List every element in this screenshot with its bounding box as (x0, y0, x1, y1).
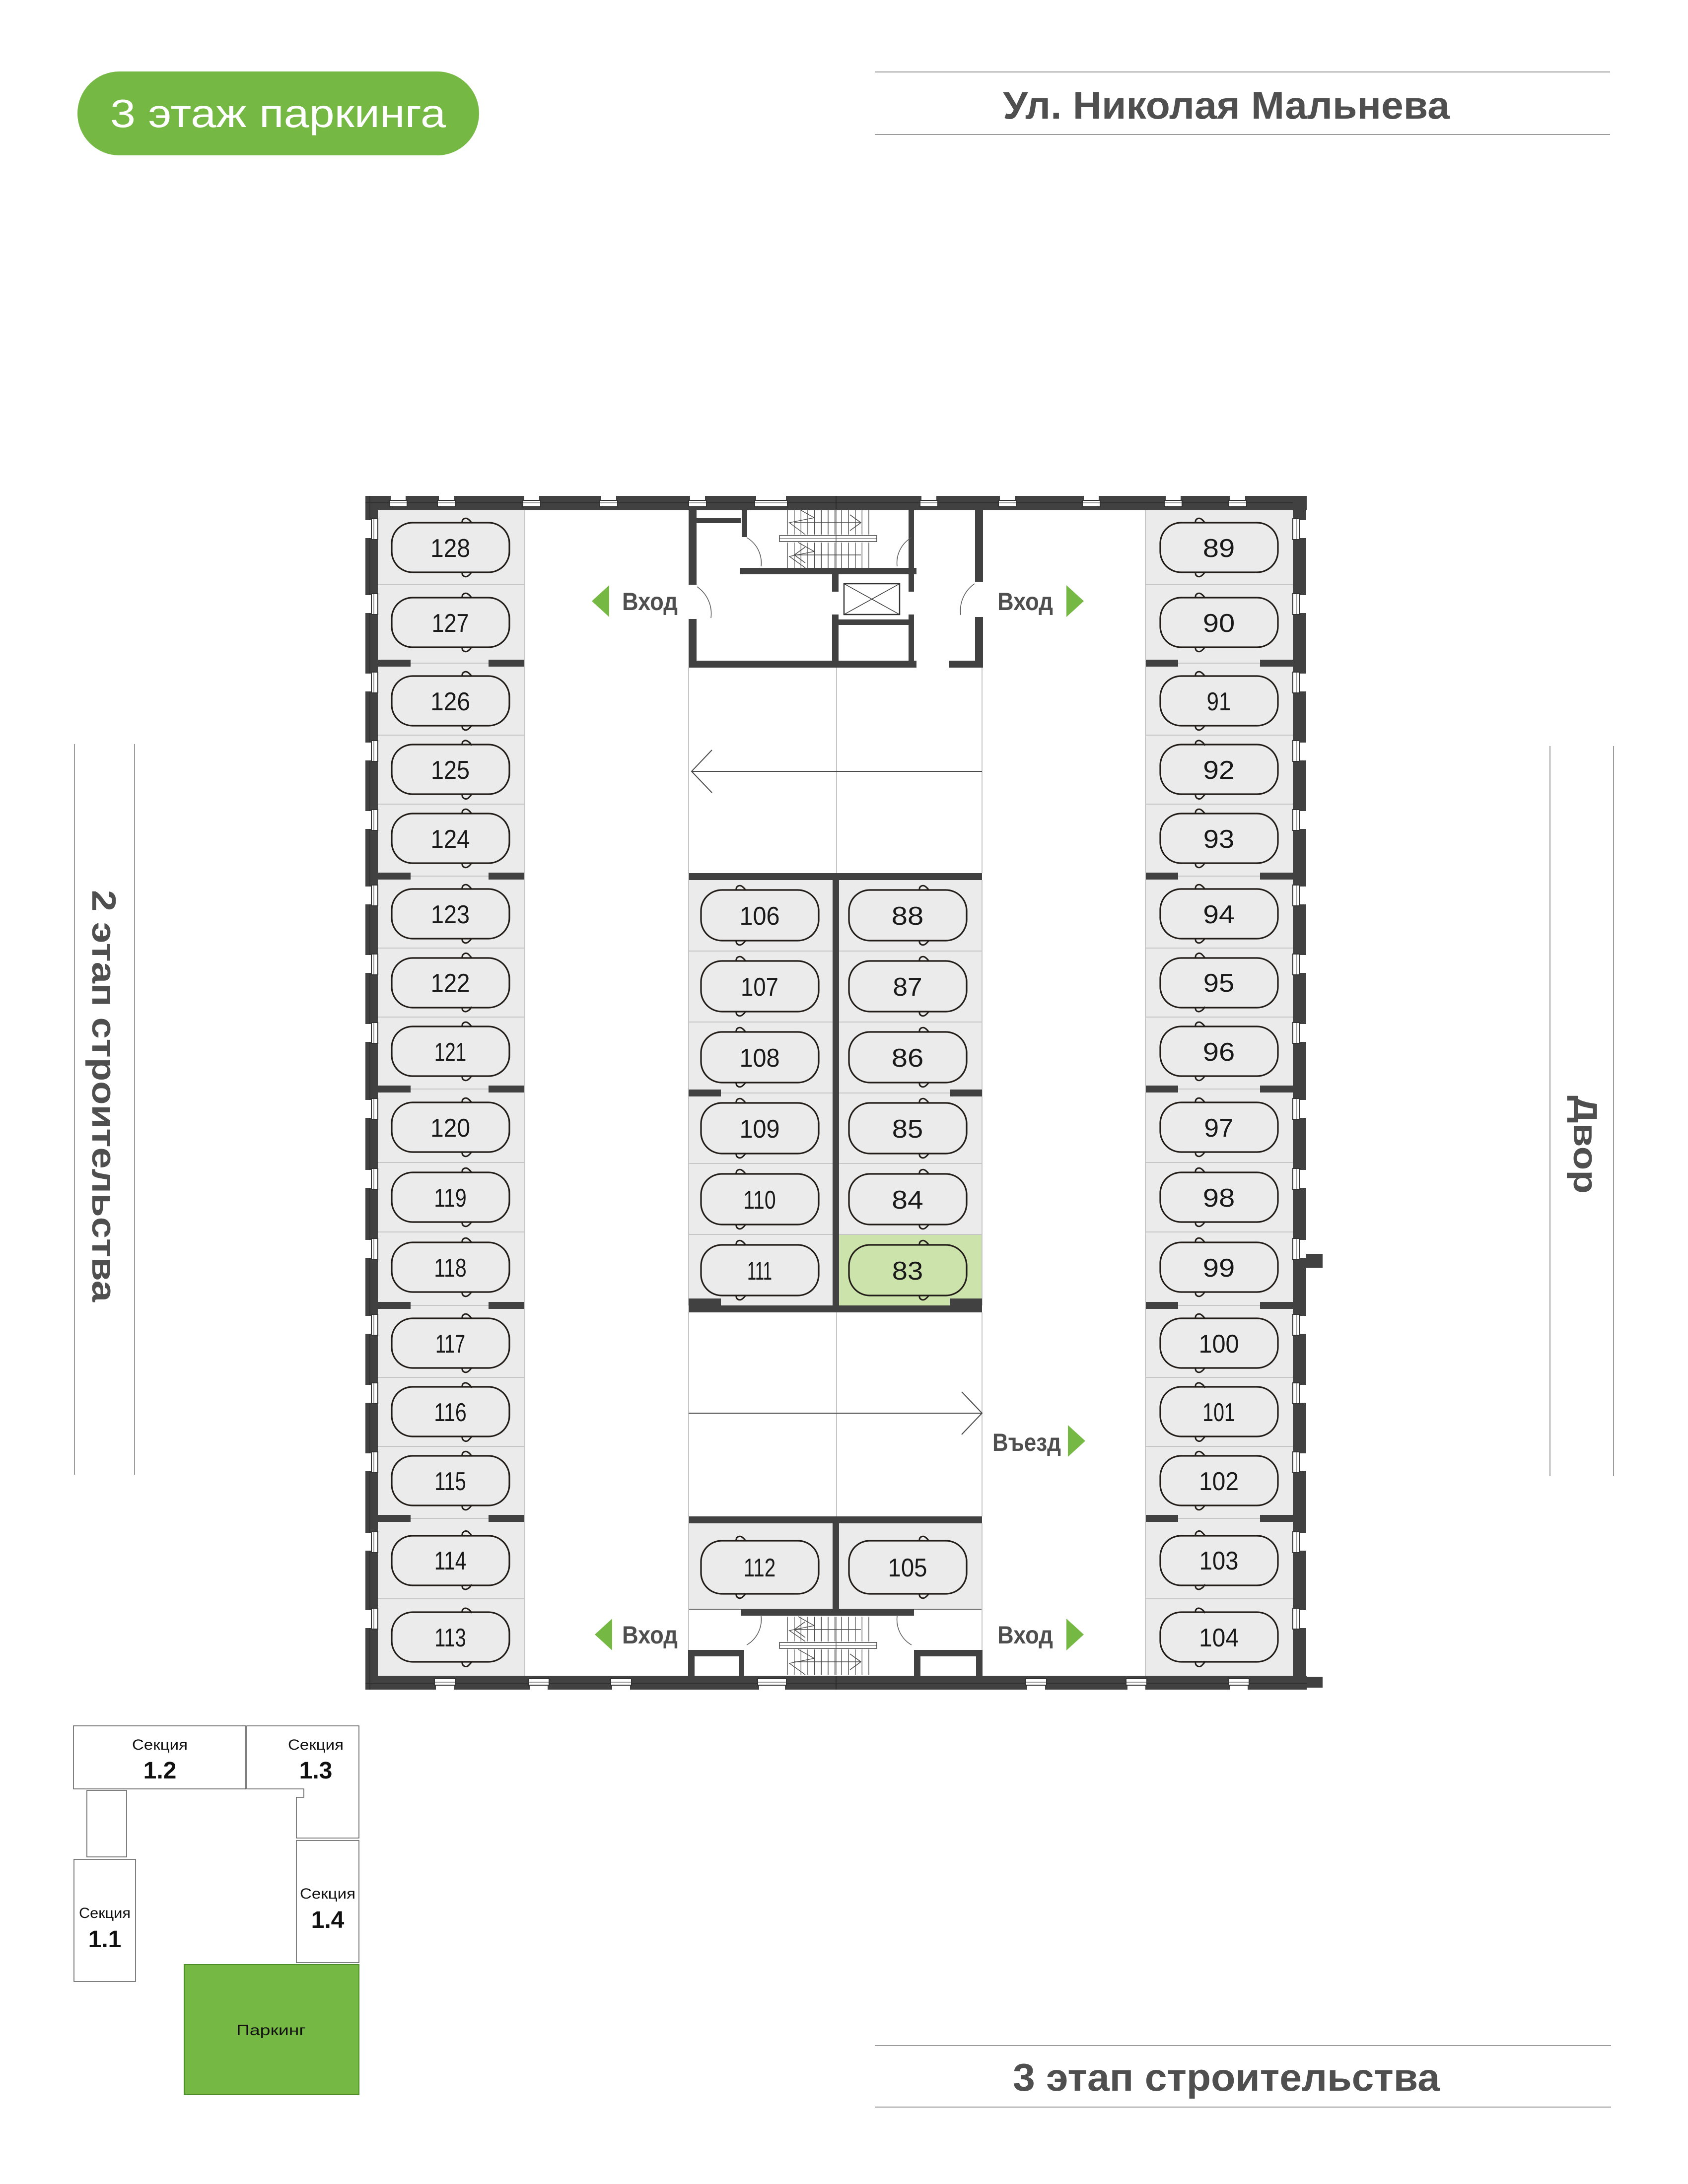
svg-text:95: 95 (1203, 969, 1234, 998)
svg-text:Паркинг: Паркинг (236, 2022, 306, 2039)
svg-text:Въезд: Въезд (992, 1429, 1061, 1456)
svg-text:91: 91 (1207, 687, 1231, 716)
svg-text:3 этаж паркинга: 3 этаж паркинга (110, 91, 446, 136)
svg-text:98: 98 (1203, 1184, 1235, 1213)
svg-text:Вход: Вход (997, 1621, 1053, 1649)
svg-text:127: 127 (432, 609, 469, 638)
svg-text:Вход: Вход (622, 1621, 678, 1649)
svg-text:Секция: Секция (300, 1886, 355, 1902)
svg-text:86: 86 (892, 1044, 924, 1073)
svg-text:88: 88 (892, 902, 924, 931)
svg-text:122: 122 (431, 969, 470, 998)
svg-text:85: 85 (892, 1115, 923, 1144)
svg-text:126: 126 (430, 687, 470, 716)
svg-text:90: 90 (1203, 609, 1235, 638)
svg-text:1.1: 1.1 (88, 1926, 122, 1953)
svg-text:113: 113 (434, 1624, 466, 1652)
svg-text:97: 97 (1204, 1114, 1233, 1143)
svg-text:Двор: Двор (1566, 1095, 1604, 1194)
svg-text:99: 99 (1203, 1254, 1235, 1283)
svg-text:93: 93 (1203, 825, 1234, 854)
svg-text:Секция: Секция (132, 1737, 188, 1753)
svg-text:123: 123 (431, 900, 470, 929)
svg-text:Секция: Секция (288, 1737, 344, 1753)
svg-text:1.4: 1.4 (311, 1907, 345, 1933)
svg-text:100: 100 (1198, 1330, 1239, 1359)
svg-text:103: 103 (1199, 1547, 1239, 1575)
svg-text:119: 119 (434, 1184, 467, 1213)
svg-text:1.3: 1.3 (299, 1758, 333, 1784)
svg-text:101: 101 (1202, 1398, 1235, 1427)
svg-text:Вход: Вход (997, 588, 1053, 615)
svg-text:2 этап строительства: 2 этап строительства (85, 890, 123, 1302)
svg-text:115: 115 (434, 1467, 466, 1496)
svg-text:111: 111 (747, 1257, 772, 1286)
svg-text:128: 128 (430, 534, 470, 563)
svg-text:107: 107 (741, 973, 778, 1002)
svg-text:109: 109 (739, 1115, 779, 1144)
svg-text:124: 124 (431, 825, 470, 854)
svg-text:121: 121 (434, 1038, 467, 1067)
svg-text:1.2: 1.2 (143, 1758, 177, 1784)
svg-text:114: 114 (434, 1547, 467, 1575)
svg-text:92: 92 (1203, 756, 1234, 785)
svg-text:112: 112 (744, 1554, 776, 1582)
svg-text:Секция: Секция (79, 1905, 131, 1921)
svg-text:Вход: Вход (622, 588, 678, 615)
svg-text:Ул. Николая Мальнева: Ул. Николая Мальнева (1003, 83, 1450, 127)
svg-text:110: 110 (743, 1186, 776, 1215)
svg-text:104: 104 (1199, 1624, 1239, 1652)
svg-text:116: 116 (434, 1398, 467, 1427)
svg-text:105: 105 (888, 1554, 927, 1582)
svg-text:94: 94 (1203, 900, 1234, 929)
svg-text:108: 108 (739, 1044, 779, 1073)
svg-text:96: 96 (1203, 1038, 1235, 1067)
svg-text:83: 83 (892, 1257, 923, 1286)
svg-text:3 этап строительства: 3 этап строительства (1013, 2055, 1440, 2099)
svg-text:89: 89 (1203, 534, 1235, 563)
svg-text:102: 102 (1199, 1467, 1239, 1496)
svg-text:118: 118 (434, 1254, 467, 1283)
svg-text:106: 106 (739, 902, 779, 931)
svg-text:120: 120 (430, 1114, 470, 1143)
svg-text:87: 87 (893, 973, 922, 1002)
svg-text:84: 84 (892, 1186, 923, 1215)
svg-text:117: 117 (435, 1330, 465, 1359)
svg-text:125: 125 (431, 756, 470, 785)
